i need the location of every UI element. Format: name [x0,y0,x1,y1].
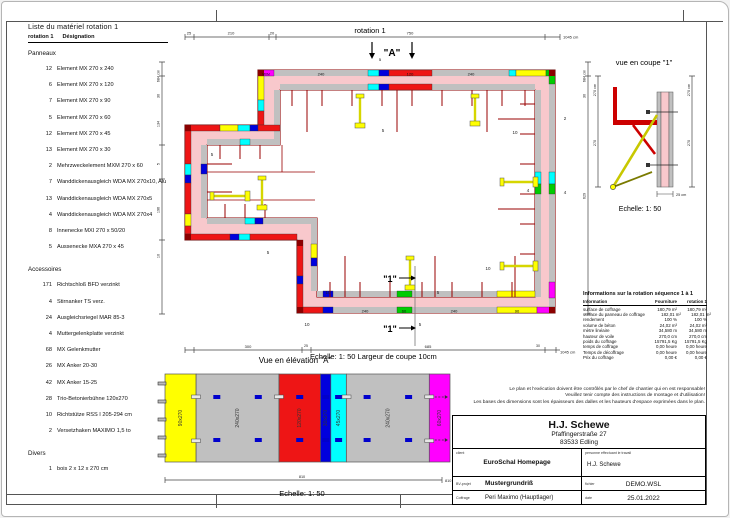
coupe-title: vue en coupe "1" [616,58,673,67]
clamp-mark [255,438,262,442]
material-row: 1bois 2 x 12 x 270 cm [28,461,168,477]
elevation-panel-label: 60x270 [437,410,443,427]
section-marker-A: "A" 5 [369,42,415,62]
rotation-info-table: Informations sur la rotation séquence 1 … [583,291,707,361]
segment-label: 240 [468,71,475,76]
elevation-panel-label: 30x270 [323,410,329,427]
material-row: 10Richtstütze RSS I 205-294 cm [28,407,168,423]
dim-label: 25 [304,344,308,348]
section-view: vue en coupe "1" 270 cm 270 270 cm 270 [588,48,710,220]
plan-number: 10 [325,290,331,295]
title-block-grid: client EuroSchal Homepage personne effec… [453,449,705,504]
clamp-mark [213,438,220,442]
title-block-company: H.J. Schewe Pfaffingerstraße 27 83533 Ed… [453,416,705,449]
info-col-fourniture: Fourniture [641,299,677,304]
dim-label: 270 cm [593,84,597,96]
plan-element-segments [185,70,555,313]
dim-label: 685 [425,344,432,349]
hinge-tick [158,436,166,439]
client-cell: client EuroSchal Homepage [453,449,582,476]
coupe-platform [613,87,657,154]
dim-label: 270 [593,140,597,146]
project-cell: BV-projet Mustergrundriß [453,476,582,490]
plan-number: 4 [527,188,530,193]
plan-number: 5 [419,322,422,327]
dim-label: 1045 cm [560,350,576,355]
dim-label: 810 [299,475,305,479]
plan-number: 10 [512,130,518,135]
plan-number: 4 [564,190,567,195]
fold-tick [683,10,684,21]
coupe-dimensions [595,76,695,187]
file-value: DEMO.WSL [582,481,705,488]
dim-label: 25 [187,31,192,36]
worker-value: H.J. Schewe [587,462,621,468]
info-table-row: Prix du coffrage0,00 €0,00 € [583,355,707,360]
elevation-panel-label: 120x270 [297,408,303,427]
coffrage-cell: Coffrage Peri Maximo (Hauptlager) [453,490,582,504]
segment-label: MXM [262,72,270,76]
title-block: H.J. Schewe Pfaffingerstraße 27 83533 Ed… [452,415,706,505]
frame-left-line [6,21,7,505]
plan-corner-blocks [185,70,555,313]
elevation-panels: 90x270240x270120x27030x27045x270240x2706… [165,374,450,462]
info-col-information: Information [583,299,641,304]
segment-label: 240 [451,308,458,313]
dim-label: 270 cm [687,84,691,96]
company-name: H.J. Schewe [453,419,705,431]
segment-label: 60 [402,308,407,313]
segment-label: 240 [318,71,325,76]
dim-label: 684 cm [157,70,161,82]
elevation-panel-label: 240x270 [235,408,241,427]
coffrage-value: Peri Maximo (Hauptlager) [485,495,553,501]
dim-label: 196 [157,207,161,213]
plan-title: rotation 1 [354,26,385,35]
dim-label: 629 [583,193,587,199]
clamp-mark [296,438,303,442]
clamp-mark [364,395,371,399]
material-row: 2Versetzhaken MAXIMO 1,5 to [28,423,168,439]
clamp-mark [335,395,342,399]
plan-number: 10 [485,266,491,271]
clamp-mark [322,395,329,399]
material-row: 42MX Anker 15-25 [28,375,168,391]
dim-label: 684 cm [583,70,587,82]
dim-label: 270 [687,140,691,146]
company-address1: Pfaffingerstraße 27 [453,431,705,439]
elevation-title: Vue en élévation "A" [259,356,332,365]
plan-number: 2 [564,116,567,121]
dim-label: 300 [245,344,252,349]
plan-number: 5 [382,128,385,133]
plan-number: 10 [304,322,310,327]
dim-label: 10 [157,254,161,258]
segment-label: 120 [407,71,414,76]
plan-number: 5 [267,250,270,255]
dim-label: 20 [270,31,275,36]
elevation-panel-label: 240x270 [385,408,391,427]
hinge-tick [158,382,166,385]
dim-label: 25 cm [676,193,686,197]
worker-cell: personne effectuant le travail H.J. Sche… [582,449,705,476]
cut-marker-label: "1" [383,274,397,284]
section-marker-small: 5 [379,57,382,62]
segment-label: 90 [515,308,520,313]
plan-number: 5 [211,152,214,157]
plan-view: rotation 1 25 210 20 750 1045 cm 300 25 … [60,14,600,364]
section-marker-label: "A" [384,48,401,59]
company-address2: 83533 Edling [453,439,705,447]
dim-label: 5 [157,163,161,165]
client-label: client [456,451,464,455]
material-section-header: Divers [28,446,168,461]
plan-formwork-strips [185,70,555,313]
elevation-panel-label: 45x270 [336,410,342,427]
clamp-mark [335,438,342,442]
material-col-qty: rotation 1 [28,34,53,40]
hinge-tick [158,454,166,457]
clamp-mark [296,395,303,399]
file-cell: fichier DEMO.WSL [582,476,705,490]
clamp-mark [322,438,329,442]
elevation-scale: Echelle: 1: 50 [279,489,324,498]
dim-label: 30 [583,94,587,98]
hinge-tick [158,418,166,421]
material-section: Divers1bois 2 x 12 x 270 cm [28,446,168,477]
screenshot-stage: Liste du matériel rotation 1 rotation 1 … [0,0,730,518]
dim-label: 134 [157,121,161,127]
segment-label: 240 [362,308,369,313]
project-label: BV-projet [456,482,471,486]
clamp-mark [405,438,412,442]
info-table-header: Information Fourniture rotation 1 [583,299,707,306]
date-cell: date 25.01.2022 [582,490,705,504]
coupe-scale: Echelle: 1: 50 [619,206,662,213]
clamp-mark [255,395,262,399]
client-value: EuroSchal Homepage [453,459,581,466]
coupe-width-dim: 25 cm [657,191,686,197]
clamp-mark [364,438,371,442]
elevation-bottom-dim: 810 810 cm [165,475,457,483]
dim-label: 210 [228,31,235,36]
info-table-rows: surface de coffrage180,79 m²180,79 m²sur… [583,307,707,361]
material-row: 28Trio-Betonierbühne 120x270 [28,391,168,407]
info-col-rotation: rotation 1 [677,299,707,304]
elevation-panel-label: 90x270 [178,410,184,427]
coupe-tie-plates [646,110,650,167]
hinge-tick [158,400,166,403]
date-value: 25.01.2022 [582,495,705,502]
coffrage-label: Coffrage [456,496,470,500]
clamp-mark [213,395,220,399]
dim-label: 750 [407,31,414,36]
cut-marker-label: "1" [383,324,397,334]
dim-label: 30 [536,344,540,348]
project-value: Mustergrundriß [485,480,533,487]
elevation-view: Vue en élévation "A" 90x270240x270120x27… [152,350,482,515]
coupe-wall [657,92,673,187]
info-table-title: Informations sur la rotation séquence 1 … [583,291,707,297]
dim-label: 30 [157,94,161,98]
plan-wall-ring [185,70,555,313]
dim-label: 1045 cm [563,35,579,40]
clamp-mark [405,395,412,399]
worker-label: personne effectuant le travail [585,451,631,455]
